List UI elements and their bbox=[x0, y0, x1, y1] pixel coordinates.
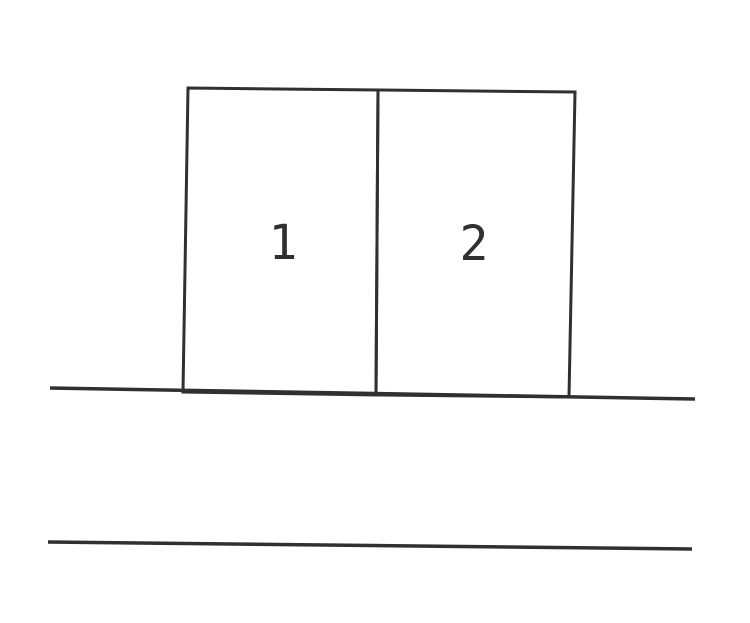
scanned-diagram-page: 1 2 bbox=[0, 0, 750, 623]
two-blocks-on-surface-figure: 1 2 bbox=[0, 0, 750, 623]
ground-surface-line bbox=[50, 388, 695, 399]
block-1-label: 1 bbox=[269, 215, 298, 271]
block-2-label: 2 bbox=[460, 216, 489, 272]
lower-horizontal-line bbox=[48, 542, 692, 549]
